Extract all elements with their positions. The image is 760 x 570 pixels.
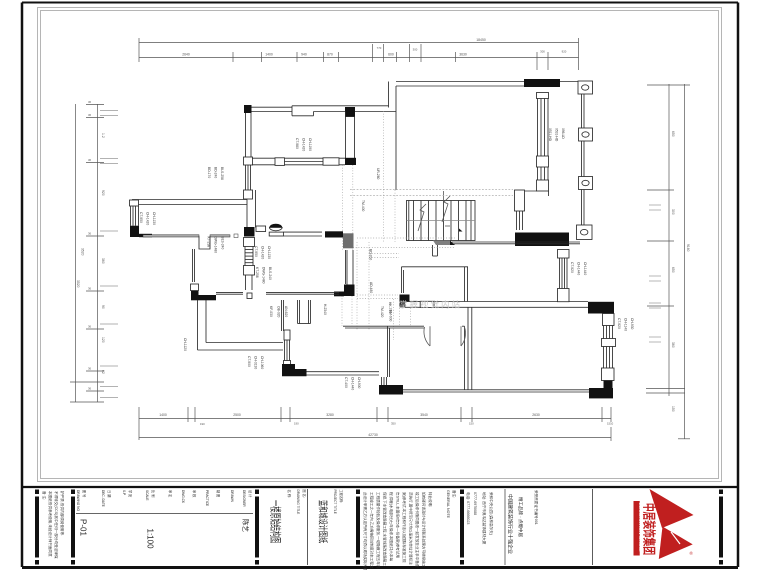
svg-text:设 计: 设 计 — [248, 490, 253, 498]
svg-text:42730: 42730 — [368, 433, 378, 437]
svg-text:300: 300 — [540, 50, 545, 54]
svg-text:9160: 9160 — [686, 244, 690, 252]
svg-text:CH-1420: CH-1420 — [146, 212, 150, 225]
svg-text:TM-420: TM-420 — [380, 306, 384, 318]
svg-text:650: 650 — [671, 267, 675, 273]
svg-text:CH-1420: CH-1420 — [302, 138, 306, 151]
svg-text:BD-240: BD-240 — [214, 167, 218, 178]
svg-text:CH-1140: CH-1140 — [624, 318, 628, 331]
svg-text:920: 920 — [101, 190, 105, 196]
svg-text:比 例: 比 例 — [151, 490, 156, 497]
svg-text:DWG-1480: DWG-1480 — [262, 267, 266, 284]
svg-text:3540: 3540 — [420, 413, 428, 417]
svg-text:护严禁,仅供内部调阅使用等.: 护严禁,仅供内部调阅使用等. — [60, 491, 65, 536]
svg-text:1510: 1510 — [607, 422, 614, 426]
svg-text:CH-1130: CH-1130 — [152, 212, 156, 225]
svg-text:18450: 18450 — [476, 38, 486, 42]
svg-text:不得转交(CCS)其中任何一部分均受法律保: 不得转交(CCS)其中任何一部分均受法律保 — [54, 491, 59, 559]
svg-text:H-2340: H-2340 — [323, 304, 327, 315]
svg-text:CH-1190: CH-1190 — [308, 138, 312, 151]
svg-text:OB-020: OB-020 — [277, 306, 281, 318]
svg-text:工程质量作检验及保修服务,一切隐蔽工程五年内: 工程质量作检验及保修服务,一切隐蔽工程五年内 — [376, 492, 381, 569]
svg-text:中居装饰集团: 中居装饰集团 — [641, 503, 657, 555]
svg-text:36: 36 — [88, 287, 92, 291]
svg-text:62: 62 — [101, 370, 105, 374]
svg-text:920: 920 — [562, 50, 567, 54]
svg-text:PROJECT TITLE: PROJECT TITLE — [333, 490, 337, 514]
svg-text:190: 190 — [294, 422, 299, 426]
svg-text:CH-1130: CH-1130 — [267, 246, 271, 259]
svg-text:36: 36 — [88, 232, 92, 236]
svg-text:图 名:: 图 名: — [302, 490, 307, 498]
svg-text:1:100: 1:100 — [146, 529, 155, 550]
svg-text:BD-200: BD-200 — [369, 249, 373, 260]
svg-text:36: 36 — [88, 158, 92, 162]
svg-text:PRACTICE: PRACTICE — [205, 490, 209, 506]
svg-text:CH-1440: CH-1440 — [577, 262, 581, 275]
svg-text:掌握视觉内站: 掌握视觉内站 — [399, 300, 462, 310]
svg-text:KT-258: KT-258 — [255, 267, 259, 278]
svg-text:300: 300 — [413, 48, 418, 52]
svg-text:CH-1060: CH-1060 — [260, 356, 264, 369]
svg-text:工程名称:: 工程名称: — [339, 490, 344, 504]
svg-text:1400: 1400 — [265, 53, 273, 57]
svg-text:CT-400: CT-400 — [344, 377, 348, 388]
svg-text:本图纸仅供参考使用,未经设计师书面同意: 本图纸仅供参考使用,未经设计师书面同意 — [48, 491, 53, 557]
svg-text:CT-950: CT-950 — [139, 212, 143, 223]
svg-text:CH-1120: CH-1120 — [183, 338, 187, 351]
svg-text:BD-170: BD-170 — [207, 167, 211, 178]
svg-text:DRAWN: DRAWN — [230, 490, 234, 503]
svg-text:地址: 西宁市奥韦达装饰建材大厦: 地址: 西宁市奥韦达装饰建材大厦 — [482, 492, 487, 545]
svg-text:CH-1420: CH-1420 — [261, 246, 265, 259]
svg-text:150: 150 — [469, 422, 474, 426]
svg-text:荣和中央公园 (森林高尔夫): 荣和中央公园 (森林高尔夫) — [489, 492, 494, 535]
svg-text:3630: 3630 — [459, 53, 467, 57]
svg-text:CH-930: CH-930 — [630, 318, 634, 330]
svg-text:范执行,图中所示尺寸均以毫米为单位计算标注: 范执行,图中所示尺寸均以毫米为单位计算标注 — [409, 492, 414, 565]
svg-text:DRAWING TITLE: DRAWING TITLE — [296, 490, 300, 515]
svg-text:CT-980: CT-980 — [295, 138, 299, 149]
svg-text:36: 36 — [88, 367, 92, 371]
svg-text:UR-280: UR-280 — [376, 168, 380, 180]
svg-text:此设计甲需乙方认定所有尺寸均须以现场实际为准: 此设计甲需乙方认定所有尺寸均须以现场实际为准 — [363, 492, 368, 570]
svg-text:36: 36 — [88, 387, 92, 391]
svg-text:CT-950: CT-950 — [254, 246, 258, 257]
svg-text:DEC. DATE: DEC. DATE — [101, 490, 105, 507]
svg-text:770: 770 — [377, 46, 382, 50]
svg-text:CT-920: CT-920 — [617, 318, 621, 329]
svg-text:940: 940 — [301, 53, 307, 57]
svg-text:案)参考试,本工程和作法以及国际标准施工规: 案)参考试,本工程和作法以及国际标准施工规 — [402, 492, 407, 563]
svg-text:精工品牌 · 点缀中居: 精工品牌 · 点缀中居 — [517, 497, 524, 537]
svg-text:360: 360 — [101, 258, 105, 264]
svg-text:GENERAL NOTE: GENERAL NOTE — [446, 490, 450, 519]
svg-text:一楼原始结构图: 一楼原始结构图 — [269, 500, 283, 543]
svg-text:BLS-240: BLS-240 — [221, 237, 225, 250]
svg-text:36: 36 — [88, 325, 92, 329]
svg-text:P-01: P-01 — [79, 519, 88, 536]
svg-text:陈艺: 陈艺 — [242, 519, 251, 533]
svg-text:S.P: S.P — [122, 490, 126, 495]
svg-text:2630: 2630 — [532, 413, 540, 417]
svg-text:特此说明.: 特此说明. — [428, 492, 433, 507]
svg-text:HK-750: HK-750 — [388, 302, 392, 313]
svg-text:备注:: 备注: — [452, 490, 457, 498]
svg-text:300: 300 — [671, 209, 675, 215]
svg-text:程,供暖(水电部分)七年保修,本图纸共六本每: 程,供暖(水电部分)七年保修,本图纸共六本每 — [389, 492, 394, 561]
svg-text:BLS-258: BLS-258 — [220, 167, 224, 180]
svg-text:2500: 2500 — [233, 413, 241, 417]
svg-text:190: 190 — [200, 422, 205, 426]
svg-text:0531-HD: 0531-HD — [555, 128, 559, 142]
svg-text:蓝和城设计图纸: 蓝和城设计图纸 — [317, 500, 329, 543]
svg-text:年STILL,本图纸6年5本一份备案)参考试用: 年STILL,本图纸6年5本一份备案)参考试用 — [396, 492, 401, 558]
svg-text:电话: 0777-6666023: 电话: 0777-6666023 — [466, 492, 471, 524]
svg-text:学 历: 学 历 — [128, 490, 133, 498]
svg-text:竣工后保修卡随同图纸一起发放至业主手中备查: 竣工后保修卡随同图纸一起发放至业主手中备查 — [415, 492, 420, 568]
svg-text:日 期: 日 期 — [107, 490, 112, 497]
svg-text:审 定: 审 定 — [168, 490, 173, 498]
svg-text:中国建筑装饰行业十强企业: 中国建筑装饰行业十强企业 — [507, 494, 514, 554]
svg-text:SCALE: SCALE — [145, 490, 149, 500]
svg-text:650: 650 — [671, 131, 675, 137]
svg-text:备 注:: 备 注: — [42, 491, 47, 500]
svg-text:CH-1440: CH-1440 — [351, 377, 355, 390]
svg-text:120: 120 — [101, 337, 105, 343]
svg-text:1400: 1400 — [159, 413, 167, 417]
svg-text:3520: 3520 — [81, 248, 85, 256]
svg-text:3520: 3520 — [76, 280, 80, 288]
svg-text:90: 90 — [101, 305, 105, 309]
svg-text:36: 36 — [88, 100, 92, 104]
svg-text:3280: 3280 — [326, 413, 334, 417]
svg-text:保修,下水管改造隐蔽工程,水管线路改造隐蔽工: 保修,下水管改造隐蔽工程,水管线路改造隐蔽工 — [383, 492, 388, 566]
svg-text:600: 600 — [388, 53, 394, 57]
svg-text:0511-HD: 0511-HD — [548, 128, 552, 142]
svg-text:870: 870 — [327, 53, 333, 57]
svg-text:DWG-1480: DWG-1480 — [214, 237, 218, 254]
svg-text:350: 350 — [391, 422, 396, 426]
svg-text:荣誉资质证书编号001: 荣誉资质证书编号001 — [534, 490, 539, 525]
svg-text:制 图: 制 图 — [216, 490, 221, 497]
svg-text:CH-1440: CH-1440 — [583, 262, 587, 275]
svg-text:CH-900: CH-900 — [357, 377, 361, 389]
svg-text:如有疑问请及时与设计师联系处理方可继续施工: 如有疑问请及时与设计师联系处理方可继续施工 — [422, 492, 427, 568]
svg-text:360: 360 — [671, 342, 675, 348]
svg-text:2640: 2640 — [182, 53, 190, 57]
svg-text:36: 36 — [88, 113, 92, 117]
svg-text:DWG.CK: DWG.CK — [181, 490, 185, 504]
svg-text:CT-920: CT-920 — [570, 262, 574, 273]
svg-text:CT-900: CT-900 — [247, 356, 251, 367]
svg-text:工程竣工之一年内,乙方需按回访制度对本工程之: 工程竣工之一年内,乙方需按回访制度对本工程之 — [370, 492, 375, 569]
svg-text:图 号: 图 号 — [82, 490, 87, 497]
svg-text:0777-6970088: 0777-6970088 — [473, 492, 477, 515]
svg-text:150: 150 — [671, 406, 675, 412]
svg-text:DESIGNER: DESIGNER — [242, 490, 246, 507]
svg-text:KF-030: KF-030 — [269, 306, 273, 317]
svg-text:096-LD: 096-LD — [561, 128, 565, 139]
svg-text:TM-400: TM-400 — [361, 200, 365, 212]
svg-text:AN-620: AN-620 — [284, 306, 288, 317]
svg-text:DRAWING NO: DRAWING NO — [76, 490, 80, 511]
svg-text:1.2: 1.2 — [101, 133, 105, 138]
svg-text:审 核: 审 核 — [192, 490, 197, 498]
svg-text:BLS-240: BLS-240 — [268, 267, 272, 280]
svg-text:CH-3130: CH-3130 — [254, 356, 258, 369]
svg-text:AD-480: AD-480 — [369, 282, 373, 293]
svg-text:KT-238: KT-238 — [207, 237, 211, 248]
svg-text:名 称:: 名 称: — [287, 490, 292, 499]
